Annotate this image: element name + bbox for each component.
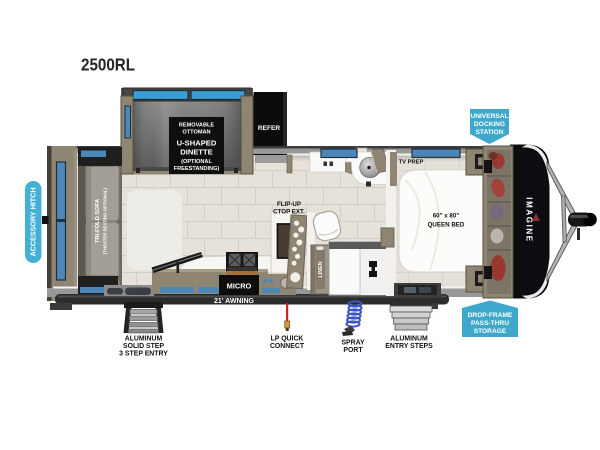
- svg-text:(THEATER SEATING OPTIONAL): (THEATER SEATING OPTIONAL): [103, 187, 108, 254]
- svg-text:FREESTANDING): FREESTANDING): [174, 166, 220, 172]
- svg-text:3 STEP ENTRY: 3 STEP ENTRY: [119, 350, 168, 357]
- svg-text:PORT: PORT: [343, 347, 363, 354]
- svg-text:PASS-THRU: PASS-THRU: [471, 320, 509, 327]
- svg-text:U-SHAPED: U-SHAPED: [177, 139, 217, 148]
- svg-text:TRI-FOLD SOFA: TRI-FOLD SOFA: [95, 198, 101, 243]
- svg-text:QUEEN BED: QUEEN BED: [428, 222, 465, 229]
- svg-text:FLIP-UP: FLIP-UP: [277, 201, 301, 208]
- svg-text:MICRO: MICRO: [227, 282, 252, 291]
- svg-text:DINETTE: DINETTE: [180, 148, 213, 157]
- svg-text:2500RL: 2500RL: [81, 55, 135, 75]
- svg-text:DROP-FRAME: DROP-FRAME: [468, 312, 513, 319]
- svg-text:21' AWNING: 21' AWNING: [214, 298, 254, 305]
- svg-text:SPRAY: SPRAY: [341, 340, 365, 347]
- svg-text:REMOVABLE: REMOVABLE: [179, 123, 215, 129]
- svg-text:60" x 80": 60" x 80": [433, 213, 460, 220]
- svg-text:ACCESSORY HITCH: ACCESSORY HITCH: [29, 187, 38, 256]
- svg-text:REFER: REFER: [258, 125, 281, 132]
- svg-text:IMAGINE: IMAGINE: [525, 197, 534, 242]
- svg-text:TV PREP: TV PREP: [399, 160, 424, 166]
- svg-text:(OPTIONAL: (OPTIONAL: [181, 159, 212, 165]
- svg-text:CTOP EXT.: CTOP EXT.: [273, 208, 305, 215]
- svg-text:ALUMINUM: ALUMINUM: [390, 336, 428, 343]
- svg-text:LINEN: LINEN: [318, 261, 324, 277]
- svg-text:SOLID STEP: SOLID STEP: [123, 343, 164, 350]
- svg-text:OTTOMAN: OTTOMAN: [182, 130, 210, 136]
- svg-text:CONNECT: CONNECT: [270, 343, 305, 350]
- svg-text:STORAGE: STORAGE: [474, 328, 507, 335]
- svg-text:DOCKING: DOCKING: [474, 121, 505, 128]
- svg-text:UNIVERSAL: UNIVERSAL: [470, 113, 508, 120]
- svg-text:ALUMINUM: ALUMINUM: [125, 336, 163, 343]
- svg-text:ENTRY STEPS: ENTRY STEPS: [385, 343, 433, 350]
- svg-text:STATION: STATION: [476, 129, 504, 136]
- svg-text:LP QUICK: LP QUICK: [271, 336, 304, 343]
